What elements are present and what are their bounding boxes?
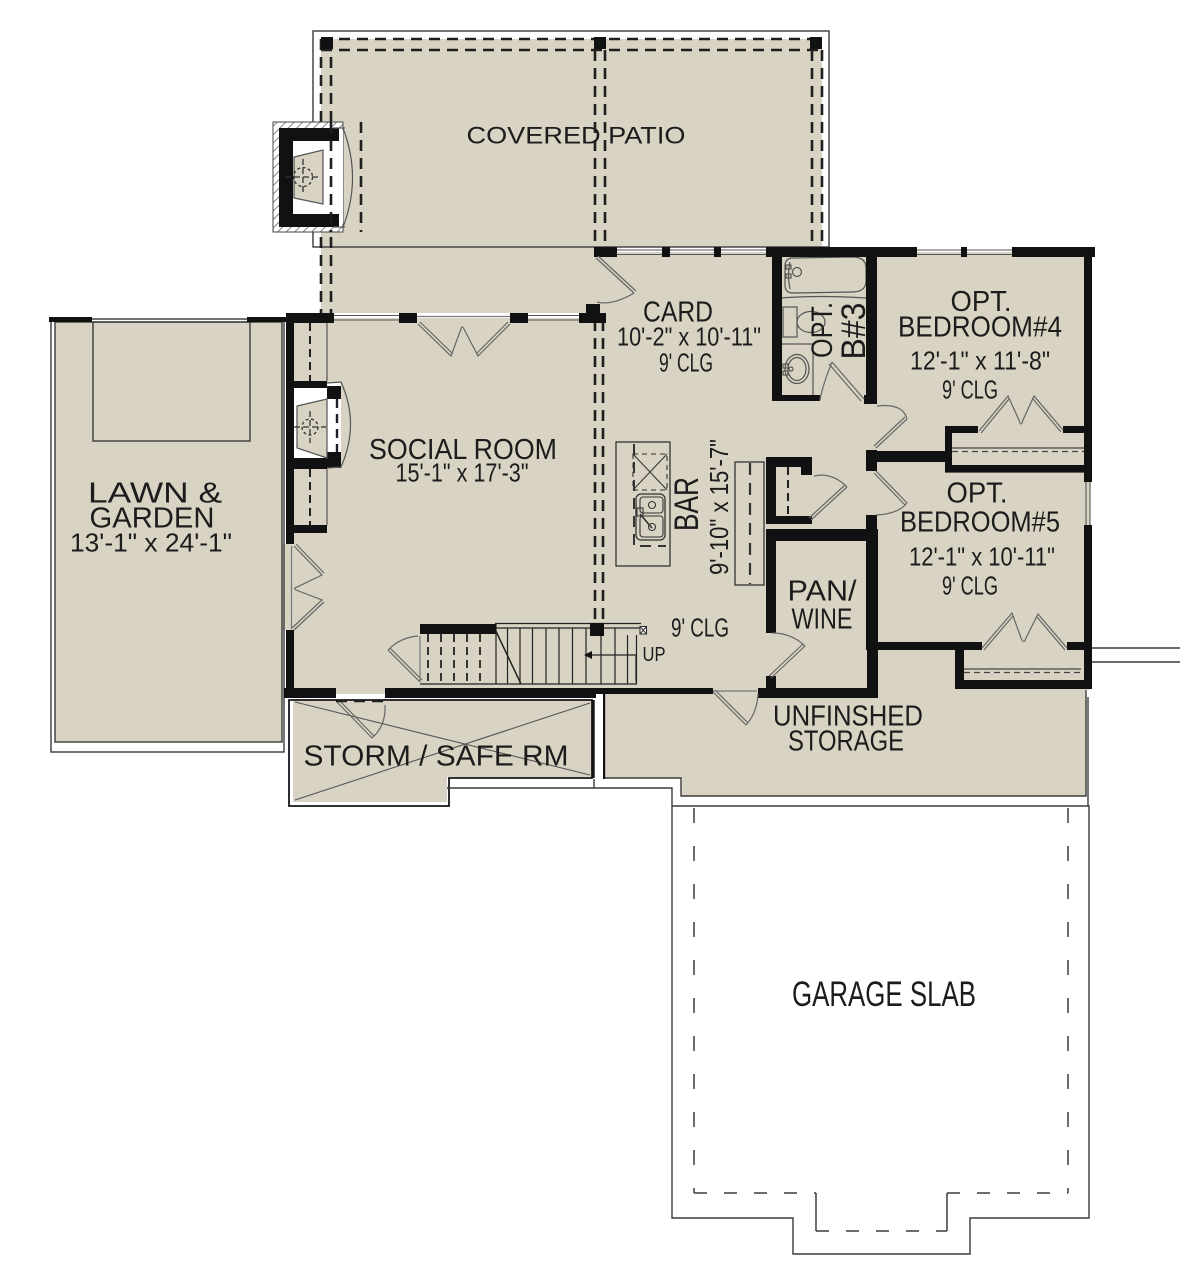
svg-text:9' CLG: 9' CLG [659,348,713,378]
svg-text:WINE: WINE [792,604,853,636]
svg-text:BEDROOM#4: BEDROOM#4 [898,312,1062,344]
svg-text:STORM / SAFE RM: STORM / SAFE RM [304,741,569,773]
svg-text:12'-1" x 11'-8": 12'-1" x 11'-8" [910,346,1050,376]
svg-text:13'-1" x 24'-1": 13'-1" x 24'-1" [70,528,232,558]
svg-text:COVERED PATIO: COVERED PATIO [467,123,686,150]
svg-text:15'-1" x 17'-3": 15'-1" x 17'-3" [396,458,529,488]
svg-text:9' CLG: 9' CLG [942,571,998,601]
svg-text:GARAGE SLAB: GARAGE SLAB [792,975,976,1014]
svg-text:9'-10" x 15'-7": 9'-10" x 15'-7" [704,439,734,575]
svg-text:9' CLG: 9' CLG [942,375,998,405]
svg-text:BAR: BAR [668,477,706,531]
svg-text:B#3: B#3 [835,303,873,360]
svg-text:STORAGE: STORAGE [788,726,904,758]
svg-text:OPT.: OPT. [947,478,1008,510]
svg-text:UP: UP [643,644,666,666]
svg-text:12'-1" x 10'-11": 12'-1" x 10'-11" [909,542,1055,572]
svg-text:9' CLG: 9' CLG [671,613,729,643]
svg-text:BEDROOM#5: BEDROOM#5 [900,507,1060,539]
